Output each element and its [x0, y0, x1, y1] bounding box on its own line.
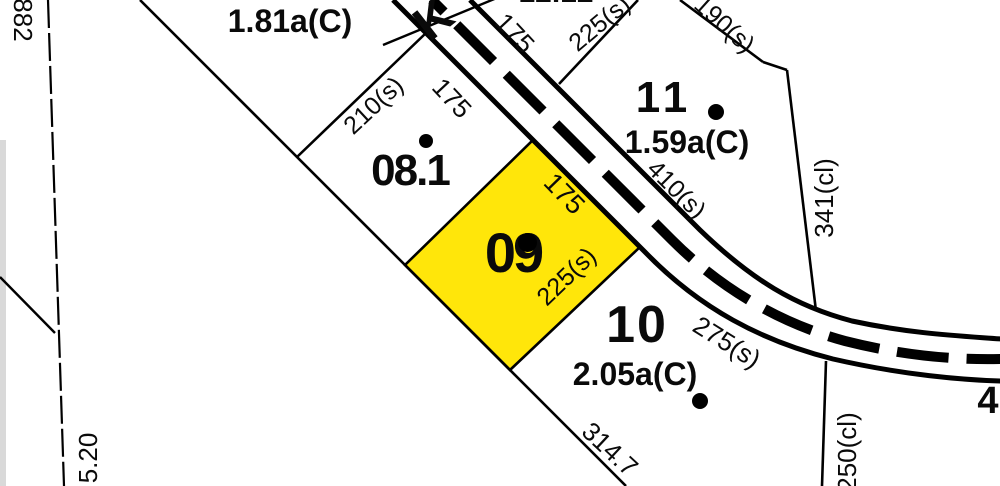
boundary-line-bottom-left: [0, 277, 55, 333]
dimension-label-250cl: 250(cl): [834, 412, 860, 486]
plat-map: 1.81a(C) 12.12 K 175 225(s) 190(s) 11 1.…: [0, 0, 1000, 486]
boundary-line-210s: [297, 33, 426, 157]
parcel-marker-dot-081: [419, 134, 433, 148]
parcel-area-label-159: 1.59a(C): [625, 126, 750, 158]
parcel-marker-dot-10: [692, 393, 708, 409]
dimension-label-5-20: 5.20: [75, 433, 101, 484]
parcel-marker-dot-11: [708, 104, 724, 120]
boundary-line-250cl: [822, 361, 826, 486]
boundary-line-corner-cut: [763, 62, 787, 70]
parcel-area-label-205: 2.05a(C): [573, 358, 698, 390]
section-line-left: [48, 0, 64, 486]
parcel-area-label-181: 1.81a(C): [228, 5, 353, 37]
parcel-number-081: 08.1: [371, 149, 449, 193]
parcel-number-4: 4: [977, 382, 998, 420]
scan-edge-artifact: [0, 140, 6, 486]
dimension-label-882: 882: [10, 0, 36, 42]
parcel-number-1212: 12.12: [518, 0, 593, 8]
parcel-number-09: 09: [485, 225, 541, 281]
dimension-label-341cl: 341(cl): [811, 158, 837, 237]
parcel-number-11: 11: [636, 76, 693, 120]
parcel-number-10: 10: [606, 299, 668, 351]
parcel-marker-dot-09: [518, 233, 537, 252]
